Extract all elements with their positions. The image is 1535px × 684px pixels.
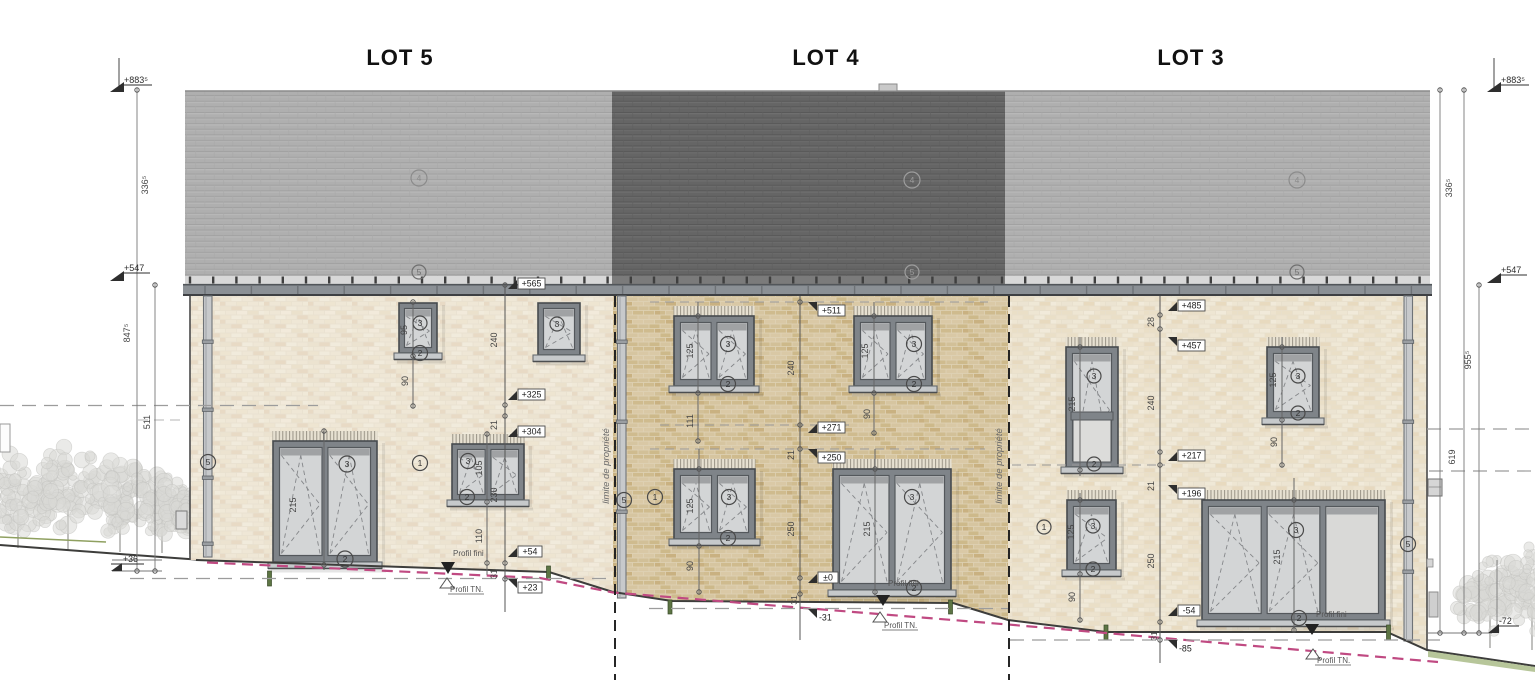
svg-text:-72: -72 (1499, 616, 1512, 626)
svg-text:-31: -31 (819, 613, 832, 623)
svg-text:110: 110 (474, 529, 484, 543)
svg-text:+883⁵: +883⁵ (1501, 75, 1525, 85)
svg-text:+271: +271 (822, 423, 842, 433)
svg-text:limite de propriété: limite de propriété (601, 428, 612, 504)
svg-text:LOT 3: LOT 3 (1157, 45, 1224, 70)
svg-text:3: 3 (345, 459, 350, 469)
svg-text:2: 2 (418, 348, 423, 358)
svg-text:90: 90 (400, 376, 410, 386)
svg-text:215: 215 (1272, 549, 1282, 564)
svg-text:619: 619 (1447, 449, 1457, 464)
svg-text:90: 90 (1269, 437, 1279, 447)
svg-text:4: 4 (417, 173, 422, 183)
svg-text:3: 3 (555, 319, 560, 329)
svg-text:955⁵: 955⁵ (1463, 350, 1473, 369)
svg-text:+485: +485 (1182, 301, 1202, 311)
svg-text:+196: +196 (1182, 489, 1202, 499)
svg-text:-54: -54 (1183, 606, 1196, 616)
svg-text:125: 125 (685, 498, 695, 513)
svg-text:250: 250 (1146, 553, 1156, 568)
svg-text:+547: +547 (124, 263, 144, 273)
svg-text:3: 3 (418, 318, 423, 328)
svg-text:4: 4 (1295, 175, 1300, 185)
svg-text:1: 1 (418, 458, 423, 468)
svg-text:+565: +565 (522, 279, 542, 289)
svg-text:230: 230 (489, 487, 499, 502)
svg-text:5: 5 (910, 267, 915, 277)
svg-text:2: 2 (726, 379, 731, 389)
svg-text:240: 240 (1146, 395, 1156, 410)
svg-text:5: 5 (206, 457, 211, 467)
svg-text:90: 90 (862, 409, 872, 419)
svg-text:2: 2 (726, 533, 731, 543)
svg-text:240: 240 (786, 360, 796, 375)
svg-text:Profil fini: Profil fini (1316, 610, 1347, 619)
svg-text:±0: ±0 (823, 573, 833, 583)
svg-text:125: 125 (685, 343, 695, 358)
svg-text:2: 2 (343, 554, 348, 564)
svg-text:2: 2 (1091, 564, 1096, 574)
svg-text:21: 21 (489, 420, 499, 430)
svg-text:2: 2 (465, 492, 470, 502)
svg-text:2: 2 (1092, 459, 1097, 469)
svg-text:+511: +511 (822, 306, 841, 316)
svg-text:21: 21 (1146, 481, 1156, 491)
svg-text:28: 28 (1146, 317, 1156, 327)
svg-text:Profil TN.: Profil TN. (884, 621, 917, 630)
svg-text:Profil TN.: Profil TN. (1317, 656, 1350, 665)
svg-text:95: 95 (399, 325, 409, 335)
svg-text:-85: -85 (1179, 644, 1192, 654)
svg-text:90: 90 (1067, 592, 1077, 602)
svg-text:+36: +36 (123, 554, 138, 564)
svg-text:336⁵: 336⁵ (1444, 178, 1454, 197)
svg-text:LOT 4: LOT 4 (792, 45, 859, 70)
svg-text:3: 3 (1091, 521, 1096, 531)
svg-text:125: 125 (1268, 372, 1278, 387)
svg-text:1: 1 (1042, 522, 1047, 532)
svg-text:240: 240 (489, 332, 499, 347)
svg-text:3: 3 (727, 492, 732, 502)
svg-text:847⁵: 847⁵ (122, 323, 132, 342)
svg-text:215: 215 (288, 497, 298, 512)
svg-text:3: 3 (1294, 525, 1299, 535)
svg-text:limite de propriété: limite de propriété (994, 428, 1005, 504)
svg-text:111: 111 (685, 414, 695, 428)
svg-text:31: 31 (489, 569, 499, 579)
svg-text:Profil fini: Profil fini (453, 549, 484, 558)
svg-text:5: 5 (417, 267, 422, 277)
svg-text:125: 125 (860, 343, 870, 358)
svg-text:215: 215 (1067, 396, 1077, 411)
svg-text:5: 5 (622, 495, 627, 505)
svg-text:336⁵: 336⁵ (140, 175, 150, 194)
svg-text:2: 2 (1296, 408, 1301, 418)
svg-text:+457: +457 (1182, 341, 1202, 351)
svg-text:3: 3 (910, 492, 915, 502)
svg-text:215: 215 (862, 521, 872, 536)
svg-text:+325: +325 (522, 390, 542, 400)
svg-text:+54: +54 (523, 547, 538, 557)
svg-text:LOT 5: LOT 5 (366, 45, 433, 70)
svg-text:511: 511 (142, 415, 152, 429)
svg-text:5: 5 (1406, 539, 1411, 549)
svg-text:31: 31 (789, 595, 799, 605)
svg-text:Profil TN.: Profil TN. (450, 585, 483, 594)
svg-text:5: 5 (1295, 267, 1300, 277)
svg-text:125: 125 (1066, 524, 1076, 539)
svg-text:4: 4 (910, 175, 915, 185)
svg-text:21: 21 (786, 450, 796, 460)
svg-text:3: 3 (1092, 371, 1097, 381)
svg-text:31: 31 (1149, 631, 1159, 641)
svg-text:3: 3 (726, 339, 731, 349)
svg-text:+217: +217 (1182, 451, 1202, 461)
svg-text:+250: +250 (822, 453, 842, 463)
svg-text:1: 1 (653, 492, 658, 502)
svg-text:2: 2 (912, 379, 917, 389)
svg-text:Profil fini: Profil fini (888, 579, 919, 588)
svg-text:3: 3 (466, 456, 471, 466)
svg-text:90: 90 (685, 561, 695, 571)
svg-text:250: 250 (786, 521, 796, 536)
svg-text:3: 3 (1296, 371, 1301, 381)
svg-text:+23: +23 (523, 583, 538, 593)
svg-text:2: 2 (1297, 613, 1302, 623)
svg-text:+883⁵: +883⁵ (124, 75, 148, 85)
svg-text:3: 3 (912, 339, 917, 349)
svg-text:+547: +547 (1501, 265, 1521, 275)
svg-text:+304: +304 (522, 427, 542, 437)
